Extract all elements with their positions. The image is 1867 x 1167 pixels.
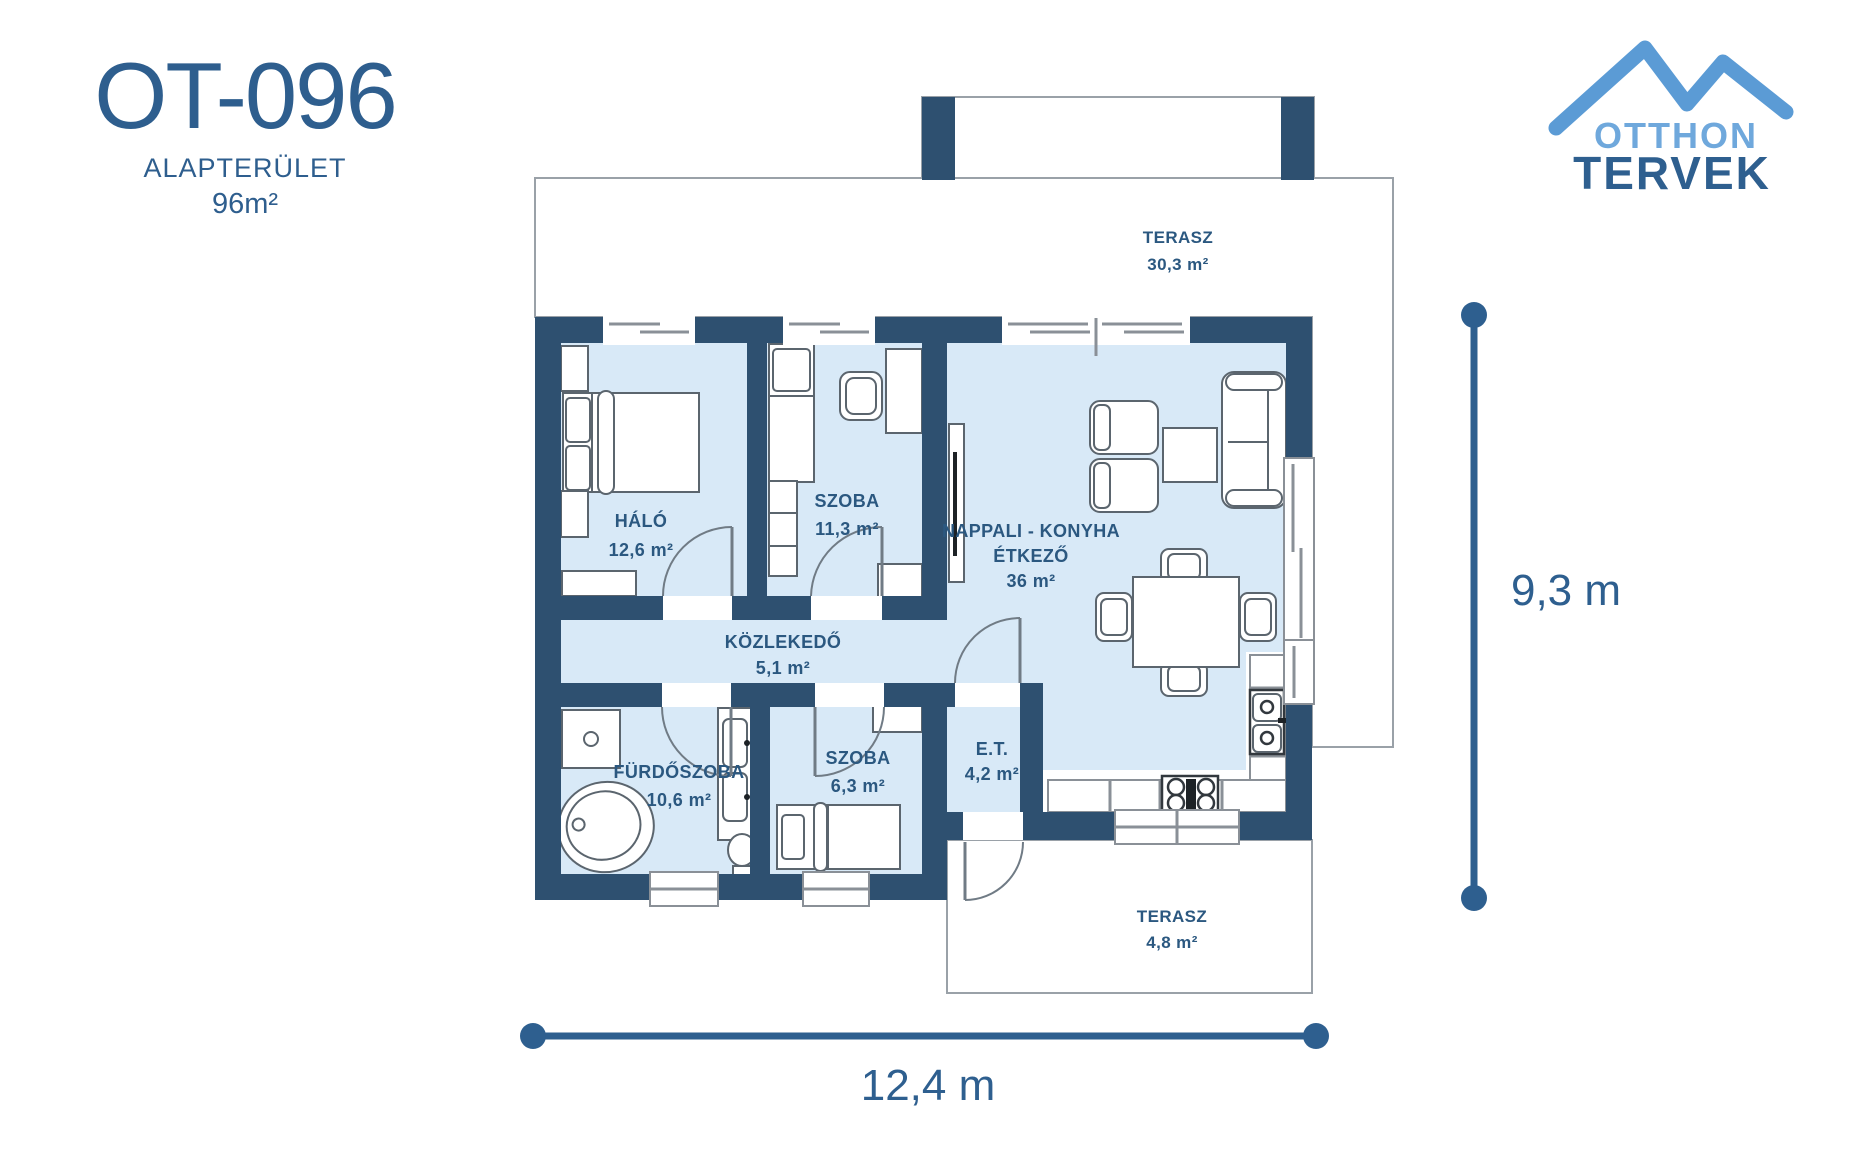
label-kozlekedo-name: KÖZLEKEDŐ [725,631,842,652]
label-halo-area: 12,6 m² [609,540,674,560]
terrace-pillar-right [1281,97,1314,180]
office-chair [840,372,882,420]
dim-dot-right [1303,1023,1329,1049]
logo-word2: TERVEK [1573,147,1771,199]
window-szoba-bottom [803,872,869,906]
stove [1162,776,1218,814]
armchair-1 [1090,401,1158,454]
nightstand-top [561,346,588,391]
label-nappali-line2: ÉTKEZŐ [993,545,1068,566]
label-szoba-top-name: SZOBA [815,491,880,511]
label-et-name: E.T. [976,739,1009,759]
window-right [1284,640,1314,704]
dining-table [1133,577,1239,667]
single-bed-top [769,344,814,482]
label-terasz-bottom-area: 4,8 m² [1146,933,1198,952]
plan-area-value: 96m² [212,188,278,220]
plan-code: OT-096 [94,43,396,148]
window-kitchen [1115,810,1239,844]
dimension-height-label: 9,3 m [1511,566,1621,615]
label-szoba-top-area: 11,3 m² [815,519,879,539]
nightstand-bottom [561,491,588,537]
szoba-dresser [769,481,797,576]
label-nappali-area: 36 m² [1006,571,1055,591]
label-terasz-top-area: 30,3 m² [1147,255,1208,274]
label-terasz-bottom-name: TERASZ [1137,907,1207,926]
label-furdoszoba-area: 10,6 m² [647,790,712,810]
dimension-width-label: 12,4 m [861,1061,996,1110]
floor-plan-canvas: OT-096 ALAPTERÜLET 96m² OTTHON TERVEK [0,0,1867,1167]
coffee-table [1163,428,1217,482]
shower [562,710,620,768]
double-bed [563,391,699,494]
wall-hall-south [561,683,947,707]
page: OT-096 ALAPTERÜLET 96m² OTTHON TERVEK [0,0,1867,1167]
label-furdoszoba-name: FÜRDŐSZOBA [614,761,745,782]
wall-et-east [1020,707,1043,812]
dim-dot-left [520,1023,546,1049]
single-bed-bottom [777,803,900,871]
plan-area-label: ALAPTERÜLET [143,153,346,183]
window-bath [650,872,718,906]
terrace-roof-edge [922,97,1314,178]
kitchen-sink [1250,690,1288,754]
dimension-height: 9,3 m [1461,302,1621,911]
title-block: OT-096 ALAPTERÜLET 96m² [94,43,396,220]
tv-board [949,424,964,582]
label-szoba-bottom-area: 6,3 m² [831,776,885,796]
label-kozlekedo-area: 5,1 m² [756,658,810,678]
dining-chair-right [1240,593,1276,641]
dimension-width: 12,4 m [520,1023,1329,1110]
dim-dot-bottom [1461,885,1487,911]
label-halo-name: HÁLÓ [615,510,668,531]
logo: OTTHON TERVEK [1556,48,1786,199]
desk [886,349,922,433]
label-terasz-top-name: TERASZ [1143,228,1213,247]
terrace-bottom [947,840,1312,993]
terrace-slider-right [1284,458,1314,642]
wall-szoba-nappali [922,343,947,620]
label-szoba-bottom-name: SZOBA [826,748,891,768]
wall-bottom-left [535,874,947,900]
wall-bath-szoba [750,707,770,874]
dim-dot-top [1461,302,1487,328]
label-nappali-line1: NAPPALI - KONYHA [942,521,1120,541]
terrace-bottom-outline [947,840,1312,993]
dining-chair-left [1096,593,1132,641]
terrace-pillar-left [922,97,955,180]
wall-left [535,317,561,900]
small-table [878,564,922,600]
wall-halo-szoba [747,343,767,620]
armchair-2 [1090,459,1158,512]
halo-dresser [562,571,636,596]
label-et-area: 4,2 m² [965,764,1019,784]
wall-et-west [922,683,947,874]
sofa [1222,372,1286,508]
